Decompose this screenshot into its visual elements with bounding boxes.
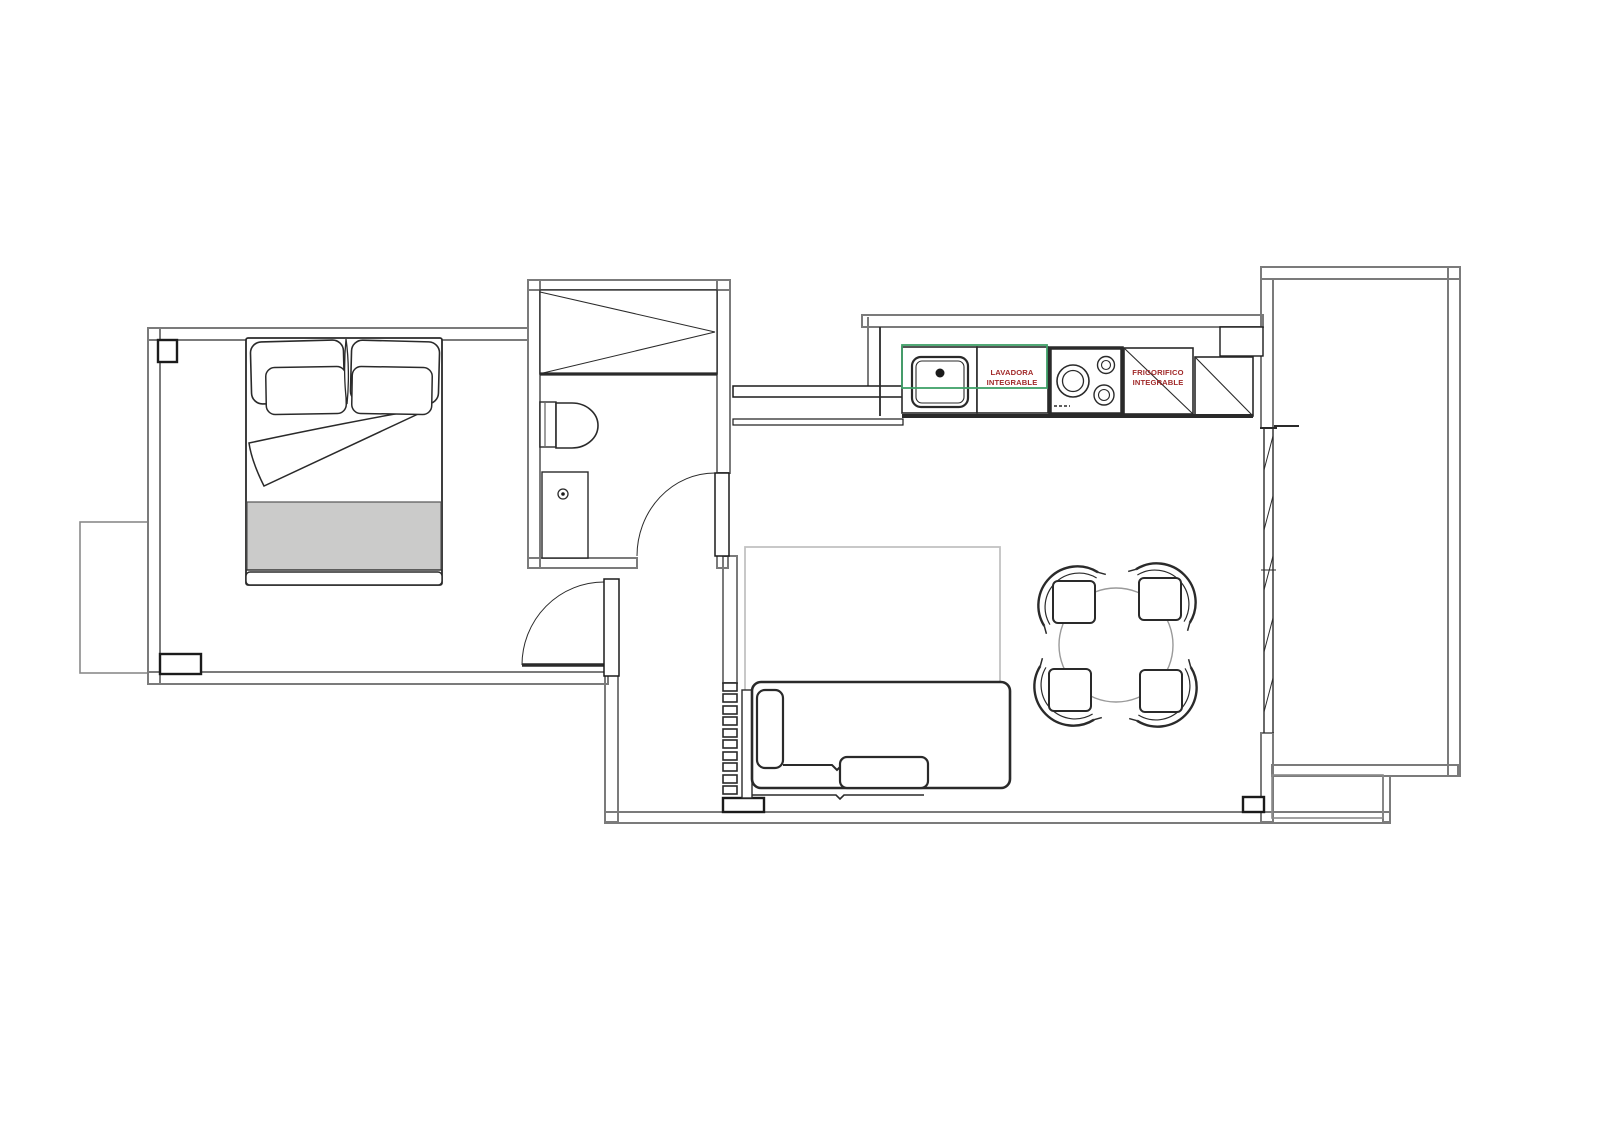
- bed-footboard: [246, 572, 442, 585]
- radiator-fin: [723, 706, 737, 714]
- sofa: [742, 682, 1010, 799]
- bed-blanket: [247, 502, 441, 570]
- vanity-body: [542, 472, 588, 558]
- wall-bathroom-top: [528, 280, 730, 290]
- kitchen-wall-return: [1220, 327, 1263, 356]
- wall-living-left: [605, 675, 618, 822]
- closet-body: [540, 290, 717, 374]
- floor-plan-page: LAVADORA INTEGRABLE FRIGORIFICO INTEGRAB…: [0, 0, 1600, 1131]
- radiator-fin: [723, 694, 737, 702]
- wall-bedroom-left: [148, 328, 160, 684]
- chair-seat: [1139, 578, 1181, 620]
- wall-terrace-annex-right: [1383, 776, 1390, 822]
- bathroom: [540, 290, 729, 558]
- bathroom-door-leaf: [715, 473, 729, 556]
- wall-terrace-top: [1261, 267, 1460, 279]
- glass-slash: [1264, 678, 1273, 712]
- sofa-base-line: [752, 795, 924, 799]
- wall-bathroom-bottom: [528, 558, 637, 568]
- fridge-label-line2: INTEGRABLE: [1133, 378, 1184, 387]
- bed-center-fold: [345, 339, 349, 404]
- sink-vanity: [542, 472, 588, 558]
- bed-pillow-front-right: [352, 366, 433, 414]
- bed-pillow-front-left: [266, 366, 347, 414]
- living-room: [723, 545, 1215, 799]
- sink-unit: [902, 347, 977, 413]
- wall-bathroom-right: [717, 280, 730, 473]
- dining-set: [1016, 545, 1215, 745]
- column-living-bottomright: [1243, 797, 1264, 812]
- fridge-label-line1: FRIGORIFICO: [1132, 368, 1183, 377]
- wall-hall-partition: [723, 556, 737, 683]
- radiator-fin: [723, 740, 737, 748]
- wall-left-annex: [80, 522, 148, 673]
- wall-bathroom-left: [528, 280, 540, 568]
- sofa-seat-cushion: [840, 757, 928, 788]
- floor-plan-canvas: LAVADORA INTEGRABLE FRIGORIFICO INTEGRAB…: [0, 0, 1600, 1131]
- radiator: [723, 683, 737, 794]
- radiator-fin: [723, 775, 737, 783]
- vanity-drain-dot: [561, 492, 565, 496]
- cooktop: [1050, 348, 1122, 414]
- bathroom-door-swing-arc: [637, 473, 715, 556]
- fridge-unit: FRIGORIFICO INTEGRABLE: [1124, 348, 1193, 414]
- bed: [246, 338, 442, 585]
- radiator-fin: [723, 717, 737, 725]
- radiator-fin: [723, 683, 737, 691]
- washer-unit: LAVADORA INTEGRABLE: [977, 347, 1048, 413]
- toilet-tank: [540, 402, 556, 447]
- radiator-fin: [723, 729, 737, 737]
- glass-slash: [1264, 556, 1273, 590]
- sofa-back-arm: [757, 690, 783, 768]
- tall-cabinet: [1195, 357, 1253, 416]
- toilet-bowl: [556, 403, 598, 448]
- sink-drain: [936, 369, 945, 378]
- glass-slash: [1264, 496, 1273, 530]
- sink-basin-inner: [916, 361, 964, 403]
- bathroom-door: [637, 473, 729, 556]
- closet: [540, 290, 717, 374]
- radiator-fin: [723, 786, 737, 794]
- radiator-fin: [723, 752, 737, 760]
- bedroom-door-frame: [604, 579, 619, 676]
- kitchen: LAVADORA INTEGRABLE FRIGORIFICO INTEGRAB…: [733, 327, 1263, 425]
- washer-label-line1: LAVADORA: [990, 368, 1033, 377]
- bedroom-door: [522, 579, 619, 676]
- sofa-side-panel: [742, 690, 752, 798]
- sliding-glass-door: [1260, 426, 1299, 733]
- chair-seat: [1053, 581, 1095, 623]
- radiator-fin: [723, 763, 737, 771]
- column-living-bottom: [723, 798, 764, 812]
- wall-terrace-right: [1448, 267, 1460, 776]
- kitchen-pass-counter-upper: [733, 386, 903, 397]
- glass-slash: [1264, 618, 1273, 652]
- wall-bedroom-bottom: [148, 672, 608, 684]
- glass-slash: [1264, 436, 1273, 470]
- kitchen-pass-counter-lower: [733, 419, 903, 425]
- washer-label-line2: INTEGRABLE: [987, 378, 1038, 387]
- chair-seat: [1049, 669, 1091, 711]
- chair-seat: [1140, 670, 1182, 712]
- bedroom-door-swing-arc: [522, 582, 604, 665]
- column-bedroom-topleft: [158, 340, 177, 362]
- wall-kitchen-top: [862, 315, 1263, 327]
- toilet: [540, 402, 598, 448]
- column-bedroom-bottomleft: [160, 654, 201, 674]
